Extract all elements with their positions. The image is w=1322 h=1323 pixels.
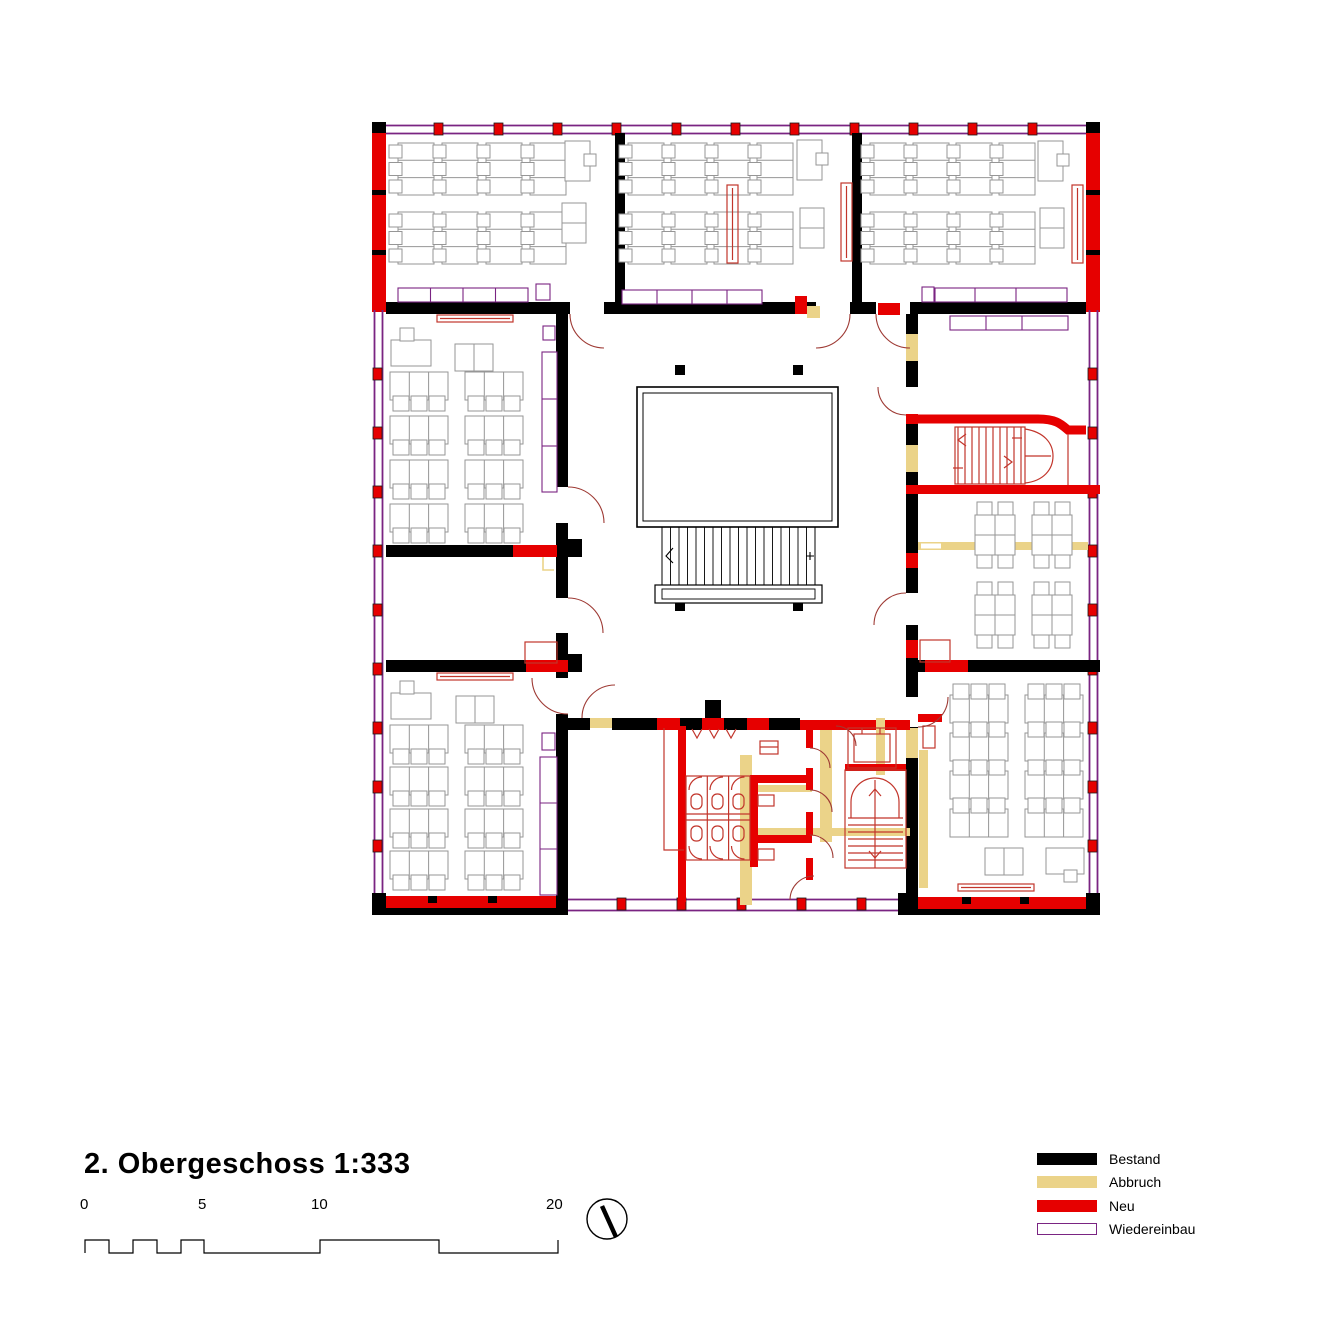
legend-item-abbruch: Abbruch [1037, 1171, 1195, 1195]
classroom-top-left [389, 141, 596, 302]
classroom-top-middle [619, 140, 828, 304]
room-left-lower [390, 673, 557, 895]
scale-label-5: 5 [198, 1196, 206, 1213]
legend-item-neu: Neu [1037, 1194, 1195, 1218]
north-arrow-icon [587, 1199, 627, 1239]
scale-bar [85, 1240, 558, 1253]
legend-label: Abbruch [1109, 1174, 1161, 1190]
classroom-top-right [841, 141, 1083, 302]
stair-northeast [906, 419, 1100, 494]
legend-swatch-wiedereinbau [1037, 1223, 1097, 1235]
drawing-sheet: 2. Obergeschoss 1:333 0 5 10 20 Bestand … [0, 0, 1322, 1323]
page-title: 2. Obergeschoss 1:333 [84, 1148, 410, 1181]
legend-swatch-abbruch [1037, 1176, 1097, 1188]
legend-item-bestand: Bestand [1037, 1147, 1195, 1171]
legend-label: Neu [1109, 1198, 1135, 1214]
legend-label: Bestand [1109, 1151, 1160, 1167]
legend-item-wiedereinbau: Wiedereinbau [1037, 1218, 1195, 1242]
wc-core [664, 718, 910, 905]
courtyard [637, 365, 838, 611]
room-right-middle [918, 502, 1088, 648]
legend-label: Wiedereinbau [1109, 1221, 1195, 1237]
stair-south [845, 770, 906, 868]
legend: Bestand Abbruch Neu Wiedereinbau [1037, 1147, 1195, 1241]
courtyard-stair [655, 527, 822, 603]
room-right-lower [918, 684, 1084, 891]
elevator [848, 728, 896, 768]
room-right-upper [950, 316, 1068, 330]
floor-plan [0, 0, 1322, 1323]
scale-label-10: 10 [311, 1196, 328, 1213]
legend-swatch-neu [1037, 1200, 1097, 1212]
scale-label-20: 20 [546, 1196, 563, 1213]
legend-swatch-bestand [1037, 1153, 1097, 1165]
room-left-upper [390, 315, 557, 543]
scale-label-0: 0 [80, 1196, 88, 1213]
